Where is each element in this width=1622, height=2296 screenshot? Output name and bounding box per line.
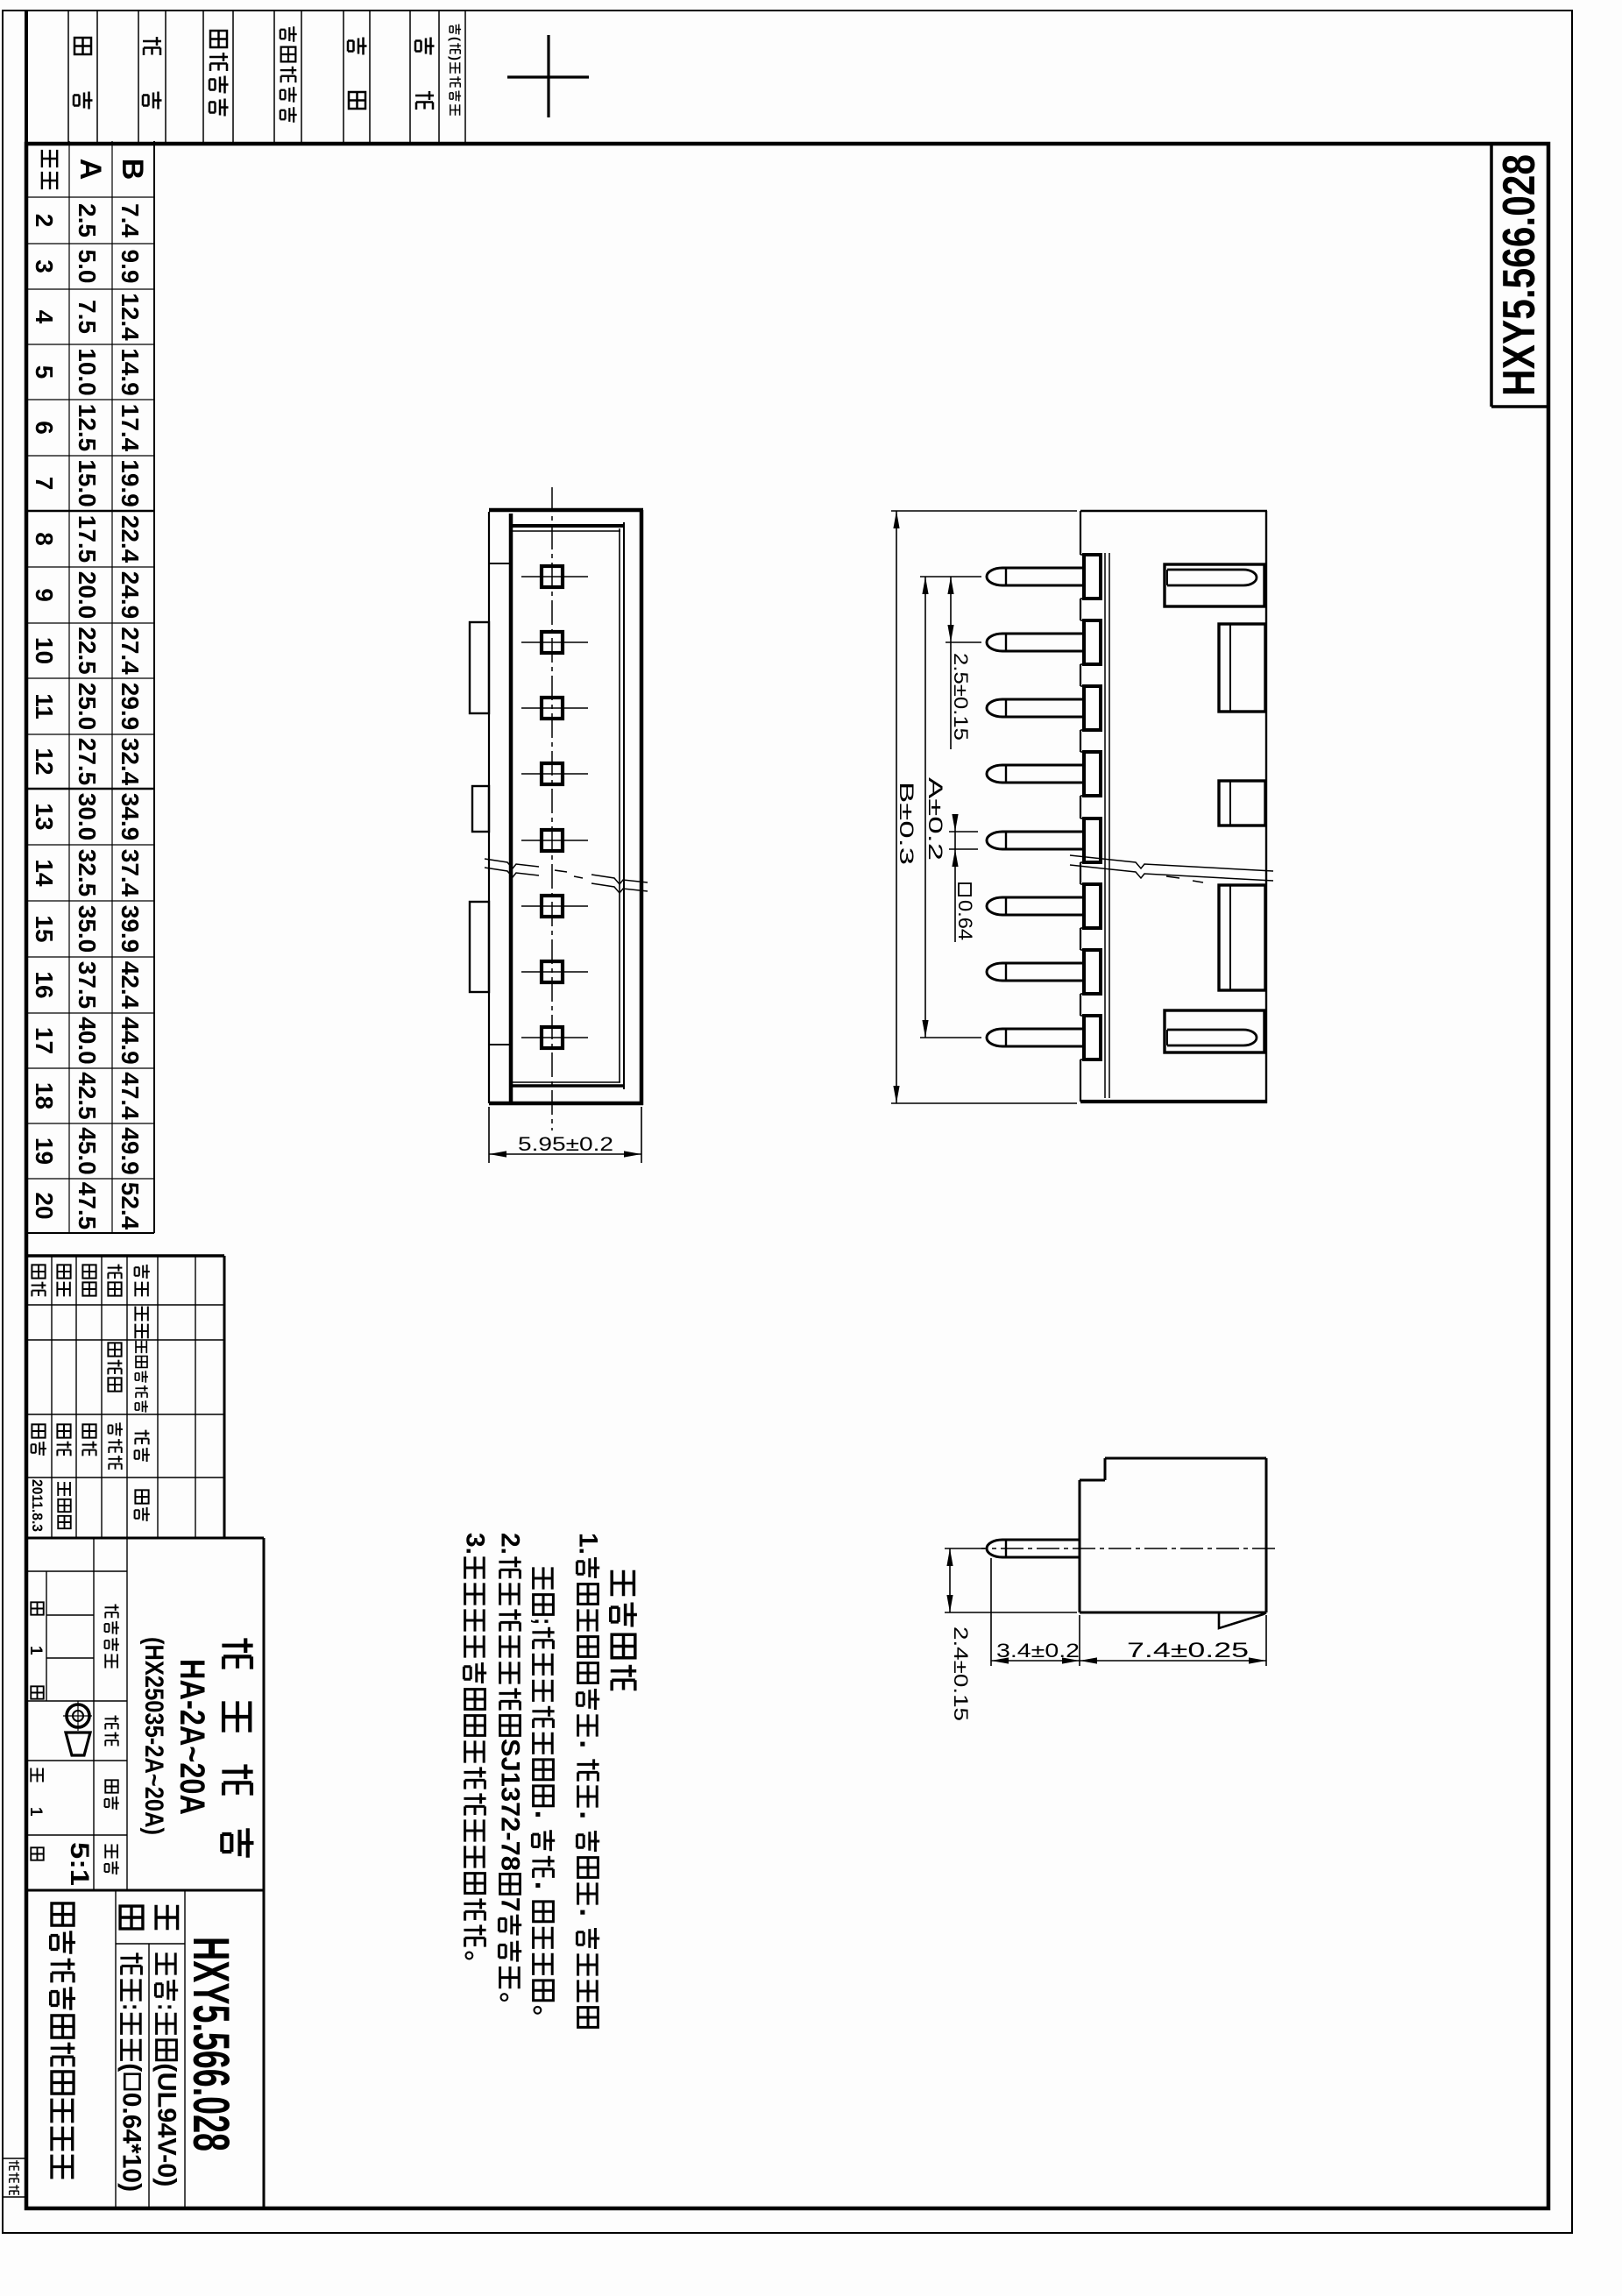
- svg-text:42.5: 42.5: [74, 1072, 101, 1120]
- svg-text:HXY5.566.028: HXY5.566.028: [1494, 154, 1545, 396]
- svg-text:7: 7: [31, 477, 58, 491]
- svg-text:7.4: 7.4: [117, 203, 144, 237]
- svg-text:20.0: 20.0: [74, 571, 101, 620]
- svg-text:0.64*10): 0.64*10): [117, 2093, 145, 2192]
- svg-text:16: 16: [31, 971, 58, 998]
- svg-text:3.: 3.: [460, 1533, 489, 1555]
- svg-text:32.5: 32.5: [74, 849, 101, 897]
- svg-text:5: 5: [31, 365, 58, 379]
- svg-text:7.4±0.25: 7.4±0.25: [1127, 1639, 1249, 1662]
- svg-text:20: 20: [31, 1192, 58, 1219]
- svg-text:44.9: 44.9: [117, 1017, 144, 1065]
- svg-text:1.: 1.: [573, 1533, 602, 1555]
- svg-text:5.0: 5.0: [74, 250, 101, 284]
- svg-text::: :: [152, 2003, 181, 2010]
- svg-text:40.0: 40.0: [74, 1017, 101, 1065]
- svg-text:12: 12: [31, 748, 58, 775]
- svg-text:30.0: 30.0: [74, 793, 101, 841]
- svg-text:5.95±0.2: 5.95±0.2: [518, 1133, 613, 1155]
- svg-text:35.0: 35.0: [74, 905, 101, 953]
- svg-text:B±0.3: B±0.3: [896, 782, 917, 865]
- svg-text:(: (: [448, 37, 463, 41]
- svg-text:2: 2: [31, 214, 58, 228]
- svg-text:1: 1: [26, 1807, 45, 1817]
- svg-text:;: ;: [528, 1618, 557, 1625]
- svg-text:4: 4: [31, 310, 58, 324]
- svg-text:3: 3: [31, 259, 58, 273]
- svg-text:B: B: [116, 159, 149, 181]
- svg-text:0.64: 0.64: [954, 900, 976, 940]
- svg-text:9: 9: [31, 588, 58, 602]
- svg-text:18: 18: [31, 1082, 58, 1109]
- svg-text:7: 7: [495, 1897, 524, 1912]
- svg-text:42.4: 42.4: [117, 961, 144, 1010]
- svg-text:): ): [448, 56, 463, 60]
- svg-text:47.5: 47.5: [74, 1182, 101, 1230]
- svg-text:22.4: 22.4: [117, 515, 144, 563]
- svg-text:2011.8.3: 2011.8.3: [29, 1479, 46, 1532]
- svg-text:27.5: 27.5: [74, 738, 101, 786]
- svg-text:14: 14: [31, 859, 58, 887]
- svg-text:SJ1372-78: SJ1372-78: [495, 1739, 524, 1871]
- svg-text:49.9: 49.9: [117, 1127, 144, 1175]
- svg-text:8: 8: [31, 532, 58, 546]
- svg-text:17.5: 17.5: [74, 515, 101, 563]
- svg-text:7.5: 7.5: [74, 300, 101, 334]
- svg-text:11: 11: [31, 693, 58, 719]
- svg-text:17.4: 17.4: [117, 404, 144, 452]
- svg-text:5:1: 5:1: [65, 1842, 94, 1886]
- svg-text:A±0.2: A±0.2: [924, 777, 946, 861]
- svg-text:45.0: 45.0: [74, 1127, 101, 1175]
- svg-text:2.5±0.15: 2.5±0.15: [950, 653, 972, 741]
- svg-text:19: 19: [31, 1137, 58, 1165]
- svg-text:13: 13: [31, 803, 58, 830]
- svg-text:HA-2A~20A: HA-2A~20A: [173, 1659, 211, 1815]
- svg-text:12.5: 12.5: [74, 404, 101, 452]
- svg-text:27.4: 27.4: [117, 627, 144, 675]
- svg-text:10: 10: [31, 637, 58, 664]
- svg-text:10.0: 10.0: [74, 348, 101, 396]
- svg-text:3.4±0.2: 3.4±0.2: [996, 1640, 1080, 1662]
- svg-text:52.4: 52.4: [117, 1182, 144, 1230]
- svg-text:29.9: 29.9: [117, 683, 144, 731]
- svg-text:39.9: 39.9: [117, 905, 144, 953]
- svg-text:HXY5.566.028: HXY5.566.028: [182, 1937, 239, 2151]
- svg-text:15.0: 15.0: [74, 459, 101, 507]
- svg-text:2.5: 2.5: [74, 203, 101, 237]
- svg-text:37.5: 37.5: [74, 961, 101, 1010]
- svg-text:(UL94V-0): (UL94V-0): [152, 2063, 181, 2186]
- svg-text:1: 1: [26, 1646, 45, 1655]
- svg-text:15: 15: [31, 915, 58, 942]
- svg-text:47.4: 47.4: [117, 1072, 144, 1120]
- svg-text::: :: [117, 2003, 145, 2010]
- svg-text:32.4: 32.4: [117, 738, 144, 786]
- svg-text:17: 17: [31, 1027, 58, 1054]
- svg-text:24.9: 24.9: [117, 571, 144, 620]
- svg-text:(HX25035-2A~20A): (HX25035-2A~20A): [139, 1637, 168, 1835]
- svg-text:A: A: [74, 159, 107, 181]
- svg-text:25.0: 25.0: [74, 683, 101, 731]
- svg-text:12.4: 12.4: [117, 293, 144, 341]
- svg-text:22.5: 22.5: [74, 627, 101, 675]
- svg-text:9.9: 9.9: [117, 250, 144, 284]
- svg-text:34.9: 34.9: [117, 793, 144, 841]
- svg-text:37.4: 37.4: [117, 849, 144, 897]
- svg-text:(: (: [117, 2063, 145, 2072]
- svg-text:2.4±0.15: 2.4±0.15: [950, 1626, 972, 1721]
- svg-text:14.9: 14.9: [117, 348, 144, 396]
- svg-text:19.9: 19.9: [117, 459, 144, 507]
- svg-text:2.: 2.: [495, 1533, 524, 1555]
- svg-text:6: 6: [31, 421, 58, 435]
